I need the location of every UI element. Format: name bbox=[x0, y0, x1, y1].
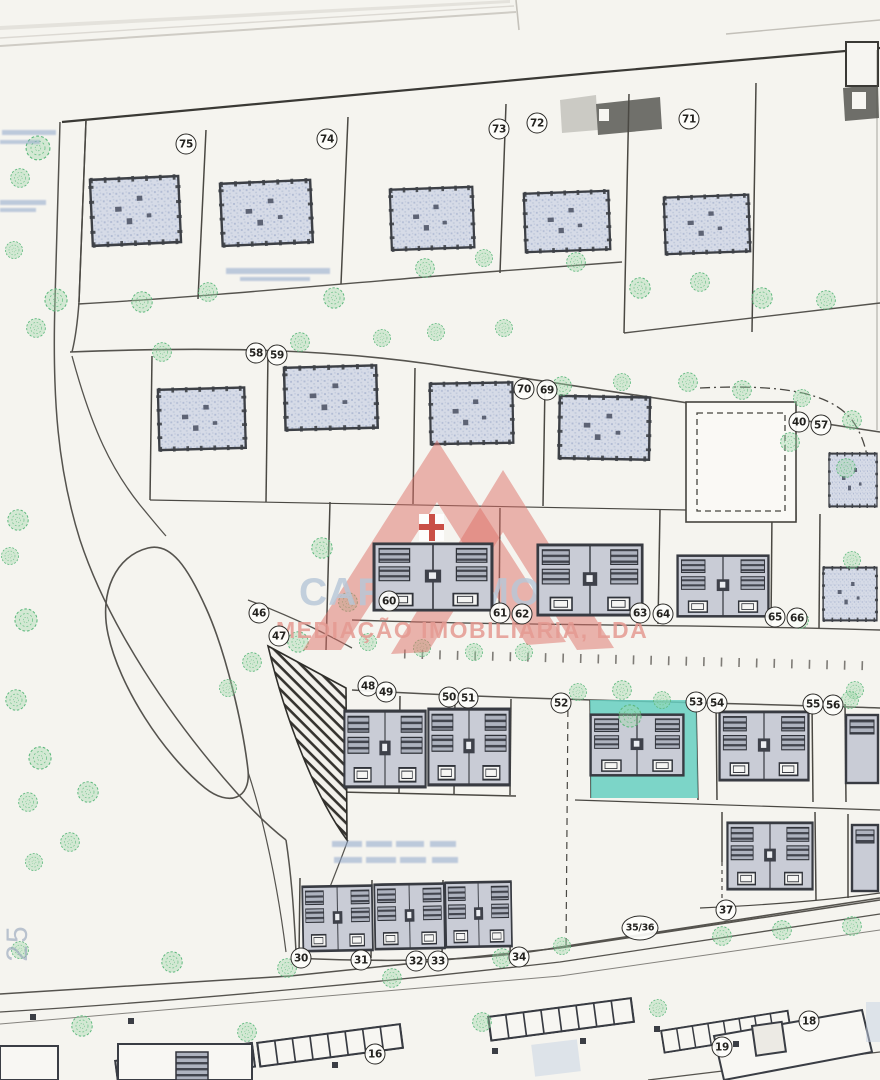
lot-marker: 75 bbox=[176, 134, 197, 155]
lot-marker: 49 bbox=[376, 682, 397, 703]
lot-marker: 30 bbox=[291, 948, 312, 969]
lot-marker: 66 bbox=[787, 608, 808, 629]
lot-marker: 35/36 bbox=[622, 916, 659, 941]
lot-marker: 71 bbox=[679, 109, 700, 130]
lot-marker: 31 bbox=[351, 950, 372, 971]
lot-marker: 19 bbox=[712, 1037, 733, 1058]
lot-marker: 56 bbox=[823, 695, 844, 716]
lot-marker: 59 bbox=[267, 345, 288, 366]
lot-marker: 58 bbox=[246, 343, 267, 364]
lot-marker: 16 bbox=[365, 1044, 386, 1065]
lot-marker: 52 bbox=[551, 693, 572, 714]
lot-marker: 72 bbox=[527, 113, 548, 134]
lot-marker: 57 bbox=[811, 415, 832, 436]
lot-marker: 64 bbox=[653, 604, 674, 625]
lot-marker: 74 bbox=[317, 129, 338, 150]
lot-marker: 50 bbox=[439, 687, 460, 708]
lot-marker: 33 bbox=[428, 951, 449, 972]
lot-marker: 54 bbox=[707, 693, 728, 714]
site-plan-scan: CARTAXIMOVE MEDIAÇÃO IMOBILIÁRIA, LDA 25… bbox=[0, 0, 880, 1080]
lot-marker: 46 bbox=[249, 603, 270, 624]
lot-marker: 61 bbox=[490, 603, 511, 624]
lot-marker: 47 bbox=[269, 626, 290, 647]
lot-marker: 60 bbox=[379, 591, 400, 612]
lot-marker: 63 bbox=[630, 603, 651, 624]
lot-marker: 65 bbox=[765, 607, 786, 628]
lot-marker: 70 bbox=[514, 379, 535, 400]
lot-marker: 34 bbox=[509, 947, 530, 968]
lot-marker: 37 bbox=[716, 900, 737, 921]
lot-marker: 62 bbox=[512, 604, 533, 625]
lot-marker: 51 bbox=[458, 688, 479, 709]
lot-marker: 32 bbox=[406, 951, 427, 972]
lot-marker: 53 bbox=[686, 692, 707, 713]
lot-marker: 55 bbox=[803, 694, 824, 715]
lot-marker: 40 bbox=[789, 412, 810, 433]
lot-marker: 73 bbox=[489, 119, 510, 140]
lot-markers-layer: 7574737271585970694057606162636465664647… bbox=[0, 0, 880, 1080]
lot-marker: 18 bbox=[799, 1011, 820, 1032]
lot-marker: 69 bbox=[537, 380, 558, 401]
